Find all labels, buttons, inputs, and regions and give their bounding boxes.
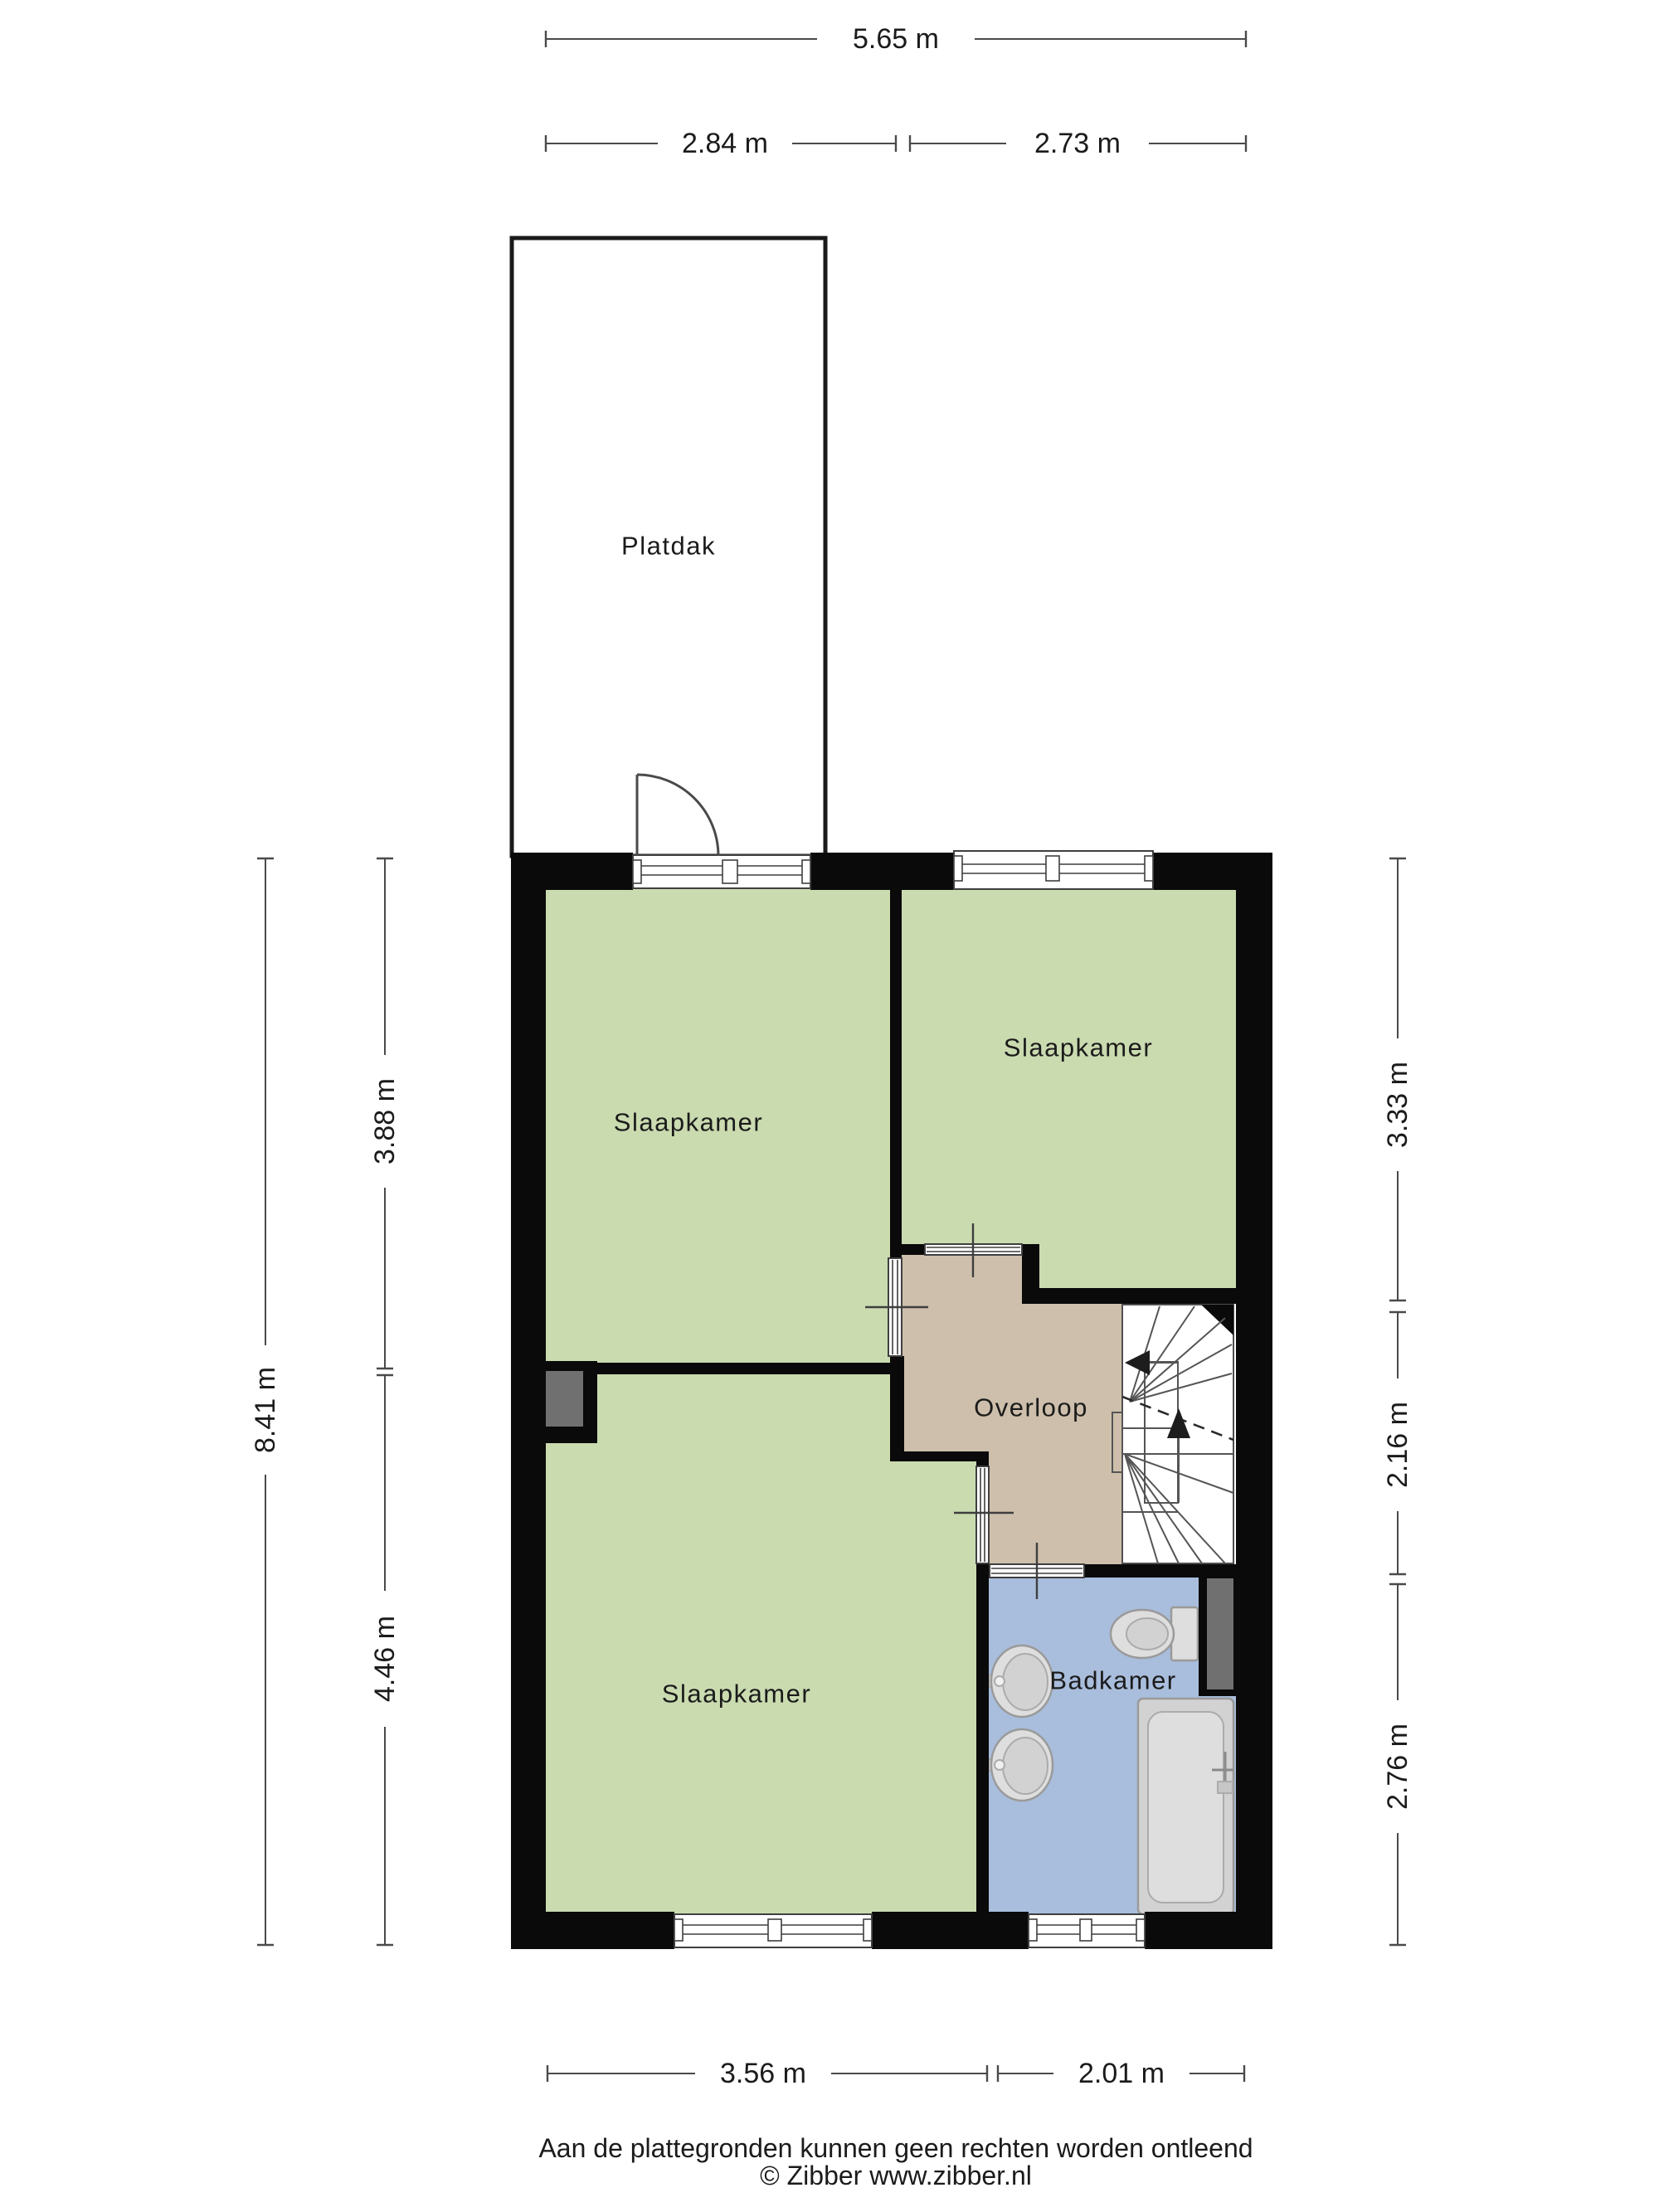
- svg-text:3.56 m: 3.56 m: [720, 2058, 806, 2089]
- wall-bedroom-bathroom: [976, 1563, 989, 1912]
- shaft-bathroom-icon: [1207, 1578, 1233, 1689]
- footer: Aan de plattegronden kunnen geen rechten…: [538, 2133, 1253, 2190]
- bathroom-label: Badkamer: [1049, 1666, 1176, 1695]
- wall-top: [511, 853, 633, 890]
- window-bottom-left: [674, 1914, 872, 1947]
- dim-right-upper: 3.33 m: [1382, 858, 1413, 1300]
- dim-total-width: 5.65 m: [546, 23, 1246, 55]
- wall-bedroom-topright-bottom: [1039, 1288, 1236, 1304]
- shaft-left-icon: [546, 1371, 583, 1427]
- platdak-area: Platdak: [512, 238, 825, 856]
- dim-top-right-width: 2.73 m: [910, 128, 1246, 159]
- wall-landing-corner: [1022, 1244, 1039, 1304]
- wall-left: [511, 853, 546, 1949]
- bedroom-top-right-floor: [902, 888, 1236, 1304]
- svg-text:2.01 m: 2.01 m: [1078, 2058, 1165, 2089]
- svg-text:2.73 m: 2.73 m: [1034, 128, 1121, 159]
- footer-disclaimer: Aan de plattegronden kunnen geen rechten…: [538, 2133, 1253, 2163]
- staircase: [1112, 1305, 1233, 1563]
- svg-text:3.33 m: 3.33 m: [1382, 1062, 1413, 1148]
- bedroom-bottom-label: Slaapkamer: [662, 1680, 811, 1709]
- dim-right-middle: 2.16 m: [1382, 1312, 1413, 1574]
- dim-top-left-width: 2.84 m: [546, 128, 896, 159]
- svg-text:4.46 m: 4.46 m: [369, 1616, 401, 1702]
- dim-bottom-right: 2.01 m: [998, 2058, 1244, 2089]
- dim-total-height: 8.41 m: [250, 858, 281, 1945]
- bathtub-icon: [1138, 1699, 1233, 1914]
- svg-text:3.88 m: 3.88 m: [369, 1078, 401, 1164]
- wall-bottom: [872, 1912, 1029, 1949]
- floorplan-drawing: Platdak: [0, 0, 1659, 2212]
- wall-landing-top: [902, 1244, 925, 1255]
- footer-copyright: © Zibber www.zibber.nl: [760, 2161, 1032, 2190]
- dim-left-upper: 3.88 m: [369, 858, 401, 1369]
- window-bottom-right: [1029, 1914, 1145, 1947]
- floorplan-page: Platdak: [0, 0, 1659, 2212]
- bedroom-top-left-label: Slaapkamer: [614, 1108, 763, 1137]
- bedroom-top-right-label: Slaapkamer: [1004, 1033, 1153, 1062]
- wall-top: [1153, 853, 1272, 890]
- svg-text:2.16 m: 2.16 m: [1382, 1402, 1413, 1488]
- toilet-icon: [1111, 1607, 1198, 1660]
- dim-bottom-left: 3.56 m: [547, 2058, 987, 2089]
- wall-top: [810, 853, 954, 890]
- wall-landing-bottomleft: [893, 1451, 989, 1461]
- svg-text:2.76 m: 2.76 m: [1382, 1723, 1413, 1810]
- wall-bottom: [1145, 1912, 1272, 1949]
- dim-right-lower: 2.76 m: [1382, 1584, 1413, 1945]
- svg-text:8.41 m: 8.41 m: [250, 1367, 281, 1453]
- landing-label: Overloop: [974, 1393, 1088, 1422]
- svg-text:2.84 m: 2.84 m: [682, 128, 768, 159]
- wall-between-top-bedrooms: [890, 888, 902, 1258]
- window-top-right: [954, 851, 1153, 889]
- window-top-left: [633, 855, 810, 888]
- platdak-label: Platdak: [621, 532, 716, 561]
- svg-text:5.65 m: 5.65 m: [853, 23, 939, 55]
- wall-bottom: [511, 1912, 674, 1949]
- wall-right: [1236, 853, 1272, 1949]
- dim-left-lower: 4.46 m: [369, 1375, 401, 1945]
